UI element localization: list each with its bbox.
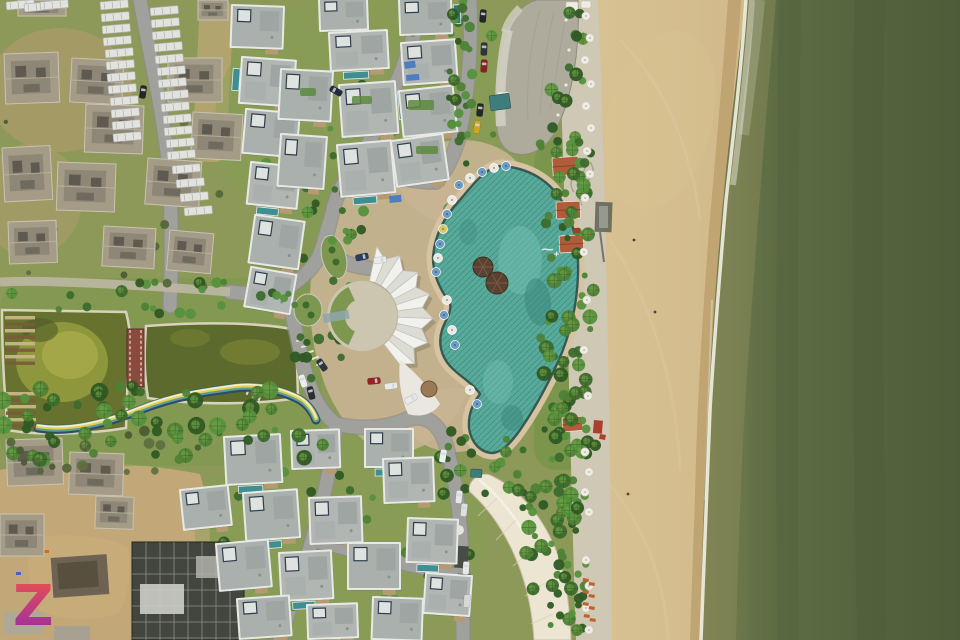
umbrella-pole: [585, 559, 587, 561]
tree: [553, 137, 562, 146]
tree-crown: [561, 573, 567, 579]
tree-crown: [118, 287, 124, 293]
stair-opening: [15, 540, 28, 547]
roof-section: [244, 81, 266, 100]
umbrella-pole: [588, 471, 590, 473]
tree-crown: [117, 411, 123, 417]
umbrella-pole: [451, 199, 453, 201]
tree: [538, 500, 548, 510]
umbrella-pole: [505, 165, 507, 167]
skylight-frame: [354, 548, 367, 561]
beach-enclosure-inner: [599, 206, 608, 228]
skylight-frame: [313, 608, 326, 618]
construction-villa: [69, 452, 124, 496]
tree-crown: [560, 358, 566, 364]
construction-villa: [8, 220, 57, 264]
stair-opening: [164, 188, 181, 196]
tree-crown: [555, 527, 562, 534]
umbrella-pole: [589, 37, 591, 39]
roof-section: [285, 577, 306, 596]
roof-section: [346, 110, 369, 131]
stair-opening: [76, 192, 94, 200]
umbrella-pole: [435, 271, 437, 273]
stair-opening: [208, 141, 223, 149]
tree: [141, 303, 149, 311]
tree: [329, 277, 337, 285]
stair-opening: [20, 180, 35, 189]
tree: [152, 426, 162, 436]
tree-crown: [589, 286, 595, 292]
pool-shallow: [483, 360, 513, 404]
umbrella-pole: [583, 349, 585, 351]
stair-opening: [133, 240, 143, 248]
tree: [454, 109, 464, 119]
stair-opening: [88, 86, 104, 94]
tree-crown: [568, 146, 574, 152]
tree-crown: [545, 352, 551, 358]
tree-crown: [583, 438, 590, 445]
stair-opening: [36, 68, 46, 78]
tree: [211, 277, 222, 288]
construction-villa: [0, 514, 44, 556]
villa: [370, 596, 424, 640]
tree: [285, 291, 291, 297]
skylight-frame: [413, 523, 426, 536]
weir-step: [5, 323, 35, 326]
umbrella-pole: [590, 127, 592, 129]
tree: [83, 303, 92, 312]
tree-crown: [548, 312, 554, 318]
tree-crown: [260, 432, 266, 438]
tree: [455, 121, 462, 128]
tree: [461, 91, 470, 100]
umbrella-pole: [584, 59, 586, 61]
roof-section: [231, 461, 254, 481]
tree-crown: [299, 453, 307, 461]
road-median: [294, 294, 322, 326]
tree: [291, 302, 298, 309]
construction-villa: [95, 496, 134, 529]
roof-section: [273, 495, 294, 519]
tree-crown: [502, 448, 508, 454]
tree: [455, 137, 464, 146]
skylight-frame: [344, 148, 359, 164]
tree: [346, 486, 354, 494]
current-streak: [787, 0, 790, 640]
tree-crown: [450, 76, 456, 82]
stair-opening: [36, 233, 45, 242]
tree-crown: [491, 463, 497, 469]
weir-step: [5, 336, 35, 339]
pool-deep: [459, 219, 477, 245]
roof-section: [338, 502, 358, 525]
tree: [77, 460, 88, 471]
tree-crown: [537, 541, 544, 548]
roof-garden: [352, 96, 372, 104]
roof-section: [324, 15, 343, 28]
tree-crown: [99, 406, 107, 414]
weir-step: [5, 349, 35, 352]
tree: [272, 291, 281, 300]
car-body: [463, 594, 470, 607]
tree-crown: [573, 249, 579, 255]
tree: [20, 394, 30, 404]
tree-crown: [553, 148, 559, 154]
stair-opening: [186, 85, 202, 92]
tree: [163, 279, 172, 288]
roof-section: [252, 184, 273, 202]
villa: [390, 133, 451, 193]
skylight-frame: [255, 167, 269, 180]
construction-villa: [56, 162, 116, 212]
tree: [303, 339, 310, 346]
construction-villa: [191, 112, 243, 161]
tree: [369, 494, 376, 501]
aerial-resort-photo: Z: [0, 0, 960, 640]
tree: [447, 68, 453, 74]
umbrella-pole: [451, 329, 453, 331]
tree-crown: [134, 414, 142, 422]
tree: [548, 622, 554, 628]
skylight-frame: [315, 502, 328, 516]
umbrella-pole: [584, 451, 586, 453]
tree: [448, 121, 456, 129]
scene-canvas: Z: [0, 0, 960, 640]
tree-crown: [514, 486, 520, 492]
tree: [564, 235, 570, 241]
umbrella-pole: [584, 491, 586, 493]
roof-section: [411, 541, 431, 558]
tree-crown: [524, 523, 532, 531]
umbrella-pole: [481, 171, 483, 173]
tree-crown: [319, 441, 325, 447]
car-windshield: [462, 506, 467, 509]
tree: [298, 353, 307, 362]
umbrella-pole: [446, 299, 448, 301]
roof-section: [435, 524, 454, 546]
tree: [574, 570, 581, 577]
tree: [467, 69, 477, 79]
skylight-frame: [251, 114, 266, 128]
stair-opening: [12, 160, 22, 172]
tree: [144, 438, 155, 449]
tree-crown: [81, 442, 87, 448]
umbrella-pole: [454, 344, 456, 346]
tree-crown: [542, 482, 549, 489]
umbrella-pole: [585, 607, 587, 609]
car-windshield: [375, 378, 378, 383]
tree-crown: [107, 438, 113, 444]
tree-crown: [585, 312, 592, 319]
tree: [328, 236, 337, 245]
tree: [557, 549, 565, 557]
stair-opening: [103, 504, 111, 511]
tree: [490, 131, 496, 137]
tree: [221, 279, 228, 286]
roof-section: [389, 481, 409, 498]
villa-deck: [454, 616, 465, 622]
tree: [330, 152, 338, 160]
teal-roof-kiosk: [489, 93, 511, 111]
tree: [458, 3, 468, 13]
tree-crown: [559, 476, 566, 483]
villa: [276, 133, 328, 195]
tree-crown: [566, 490, 574, 498]
car: [479, 9, 486, 22]
tree-crown: [574, 361, 581, 368]
tree: [56, 306, 62, 312]
umbrella-pole: [493, 167, 495, 169]
skylight-frame: [254, 272, 267, 285]
roof-vent: [564, 18, 567, 21]
car-body: [479, 9, 486, 22]
stair-opening: [18, 232, 28, 242]
roof-section: [428, 594, 447, 610]
car-windshield: [482, 46, 487, 49]
umbrella-pole: [587, 395, 589, 397]
roof-section: [367, 147, 389, 174]
tree-crown: [567, 584, 574, 591]
villa-deck: [308, 189, 319, 195]
umbrella-pole: [588, 585, 590, 587]
pool-logo-mark: [542, 249, 553, 250]
roof-section: [245, 545, 266, 569]
weir-step: [5, 342, 35, 345]
tree: [519, 446, 526, 453]
white-tent: [581, 1, 591, 8]
tree: [464, 131, 471, 138]
villa-deck: [440, 564, 452, 569]
stair-opening: [208, 12, 217, 15]
tree: [66, 291, 74, 299]
tree: [582, 425, 591, 434]
villa-pool: [232, 68, 241, 90]
skylight-frame: [378, 601, 391, 613]
tree-crown: [95, 391, 101, 397]
round-kiosk: [421, 381, 437, 397]
tree-crown: [553, 190, 559, 196]
car-body: [462, 561, 469, 574]
umbrella-pole: [458, 184, 460, 186]
tree-crown: [573, 626, 579, 632]
tree: [519, 504, 526, 511]
tree-crown: [567, 415, 574, 422]
tree: [337, 354, 344, 361]
tree: [121, 271, 128, 278]
tree: [7, 438, 16, 447]
tree: [151, 450, 160, 459]
tree-crown: [522, 548, 529, 555]
umbrella-pole: [590, 83, 592, 85]
roof-section: [353, 567, 373, 585]
tree-crown: [268, 405, 274, 411]
umbrella-pole: [588, 629, 590, 631]
roof-section: [431, 45, 452, 66]
tree: [151, 278, 158, 285]
tree: [195, 444, 201, 450]
tree: [466, 99, 476, 109]
tree-crown: [571, 133, 577, 139]
roof-section: [223, 566, 244, 586]
skylight-frame: [407, 46, 421, 59]
tree-crown: [558, 404, 564, 410]
tree: [217, 301, 226, 310]
roof-section: [361, 35, 383, 54]
tree-crown: [549, 276, 557, 284]
tree: [446, 426, 456, 436]
villa-deck: [418, 502, 430, 507]
umbrella-pole: [469, 177, 471, 179]
villa-deck: [265, 49, 278, 54]
skylight-frame: [285, 557, 299, 571]
villa: [308, 495, 364, 550]
tree: [297, 333, 305, 341]
skylight-frame: [397, 143, 412, 158]
stair-opening: [87, 479, 103, 486]
villa-pool: [353, 196, 377, 205]
tree-crown: [560, 270, 567, 277]
tree: [272, 427, 279, 434]
stair-opening: [81, 70, 92, 80]
blue-tarp: [406, 74, 419, 81]
construction-villa: [2, 145, 53, 201]
tree-crown: [529, 585, 535, 591]
stair-opening: [194, 244, 203, 253]
tree-crown: [571, 389, 578, 396]
umbrella-pole: [443, 314, 445, 316]
tree: [547, 253, 556, 262]
construction-villa: [167, 230, 214, 274]
roof-section: [428, 2, 448, 20]
skylight-frame: [186, 492, 199, 505]
villa-deck: [325, 468, 337, 473]
car-windshield: [482, 62, 487, 65]
tree: [358, 206, 369, 217]
villa-deck: [283, 539, 296, 545]
stair-opening: [69, 174, 81, 185]
roof-section: [284, 95, 305, 115]
roof-section: [187, 508, 207, 525]
median-tree: [303, 302, 310, 309]
tree-crown: [572, 70, 579, 77]
red-structure: [574, 228, 580, 233]
red-structure: [593, 420, 603, 434]
tree: [568, 610, 575, 617]
tree: [306, 487, 316, 497]
roof-section: [308, 556, 328, 580]
tree-crown: [584, 230, 591, 237]
weir-step: [6, 392, 36, 395]
tree-crown: [49, 396, 56, 403]
tree: [103, 419, 112, 428]
tree: [4, 120, 8, 124]
car-body: [481, 42, 488, 55]
villa: [382, 456, 436, 509]
umbrella-pole: [442, 228, 444, 230]
tree-crown: [264, 385, 273, 394]
roof-garden: [300, 88, 316, 96]
roof-vent: [567, 48, 570, 51]
tree: [572, 527, 579, 534]
tree-crown: [153, 418, 159, 424]
roof-section: [315, 521, 336, 539]
stair-opening: [221, 127, 230, 137]
stair-opening: [101, 466, 111, 475]
villa: [179, 484, 234, 536]
umbrella-pole: [586, 150, 588, 152]
tree: [556, 611, 564, 619]
algae-streak: [170, 329, 210, 347]
villa: [277, 68, 334, 128]
tree-crown: [539, 369, 546, 376]
tree: [21, 459, 27, 465]
person-dot: [633, 239, 636, 242]
tree: [174, 307, 185, 318]
tree-crown: [573, 441, 579, 447]
tree: [555, 453, 564, 462]
teal-roof-kiosk: [471, 469, 482, 478]
tree-crown: [568, 320, 575, 327]
tree: [465, 22, 475, 32]
stair-opening: [157, 170, 168, 181]
tree: [532, 533, 538, 539]
roof-section: [207, 490, 226, 511]
roof-section: [377, 619, 397, 636]
skylight-frame: [371, 433, 383, 444]
car: [367, 377, 381, 385]
tree: [73, 401, 81, 409]
car-body: [476, 103, 484, 117]
weir-step: [5, 355, 35, 358]
car-windshield: [457, 493, 462, 496]
roof-section: [243, 618, 264, 635]
tree: [547, 122, 558, 133]
tree: [538, 143, 545, 150]
umbrella-pole: [585, 105, 587, 107]
stair-opening: [15, 66, 26, 77]
umbrella-pole: [585, 15, 587, 17]
villa-deck: [313, 122, 326, 128]
umbrella-pole: [588, 511, 590, 513]
tree: [307, 374, 315, 382]
tree-crown: [591, 441, 597, 447]
stair-opening: [26, 527, 34, 535]
tree-crown: [294, 431, 301, 438]
tree: [343, 236, 352, 245]
median-tree: [333, 259, 340, 266]
tree: [561, 189, 569, 197]
tree-crown: [547, 85, 554, 92]
stair-opening: [202, 124, 213, 135]
tree-crown: [170, 426, 178, 434]
tree: [445, 443, 453, 451]
rubble: [140, 584, 184, 614]
car-body: [455, 490, 463, 504]
construction-villa: [102, 226, 156, 269]
stair-opening: [177, 241, 187, 251]
tree: [136, 388, 145, 397]
roof-section: [405, 17, 425, 31]
tree-crown: [542, 343, 550, 351]
roof-vent: [564, 83, 567, 86]
pool-deep: [501, 405, 523, 431]
roof-section: [312, 622, 332, 635]
skylight-frame: [237, 9, 250, 21]
algae-streak: [220, 339, 280, 365]
tree-crown: [579, 181, 586, 188]
roof-section: [304, 142, 322, 168]
tree: [580, 158, 590, 168]
